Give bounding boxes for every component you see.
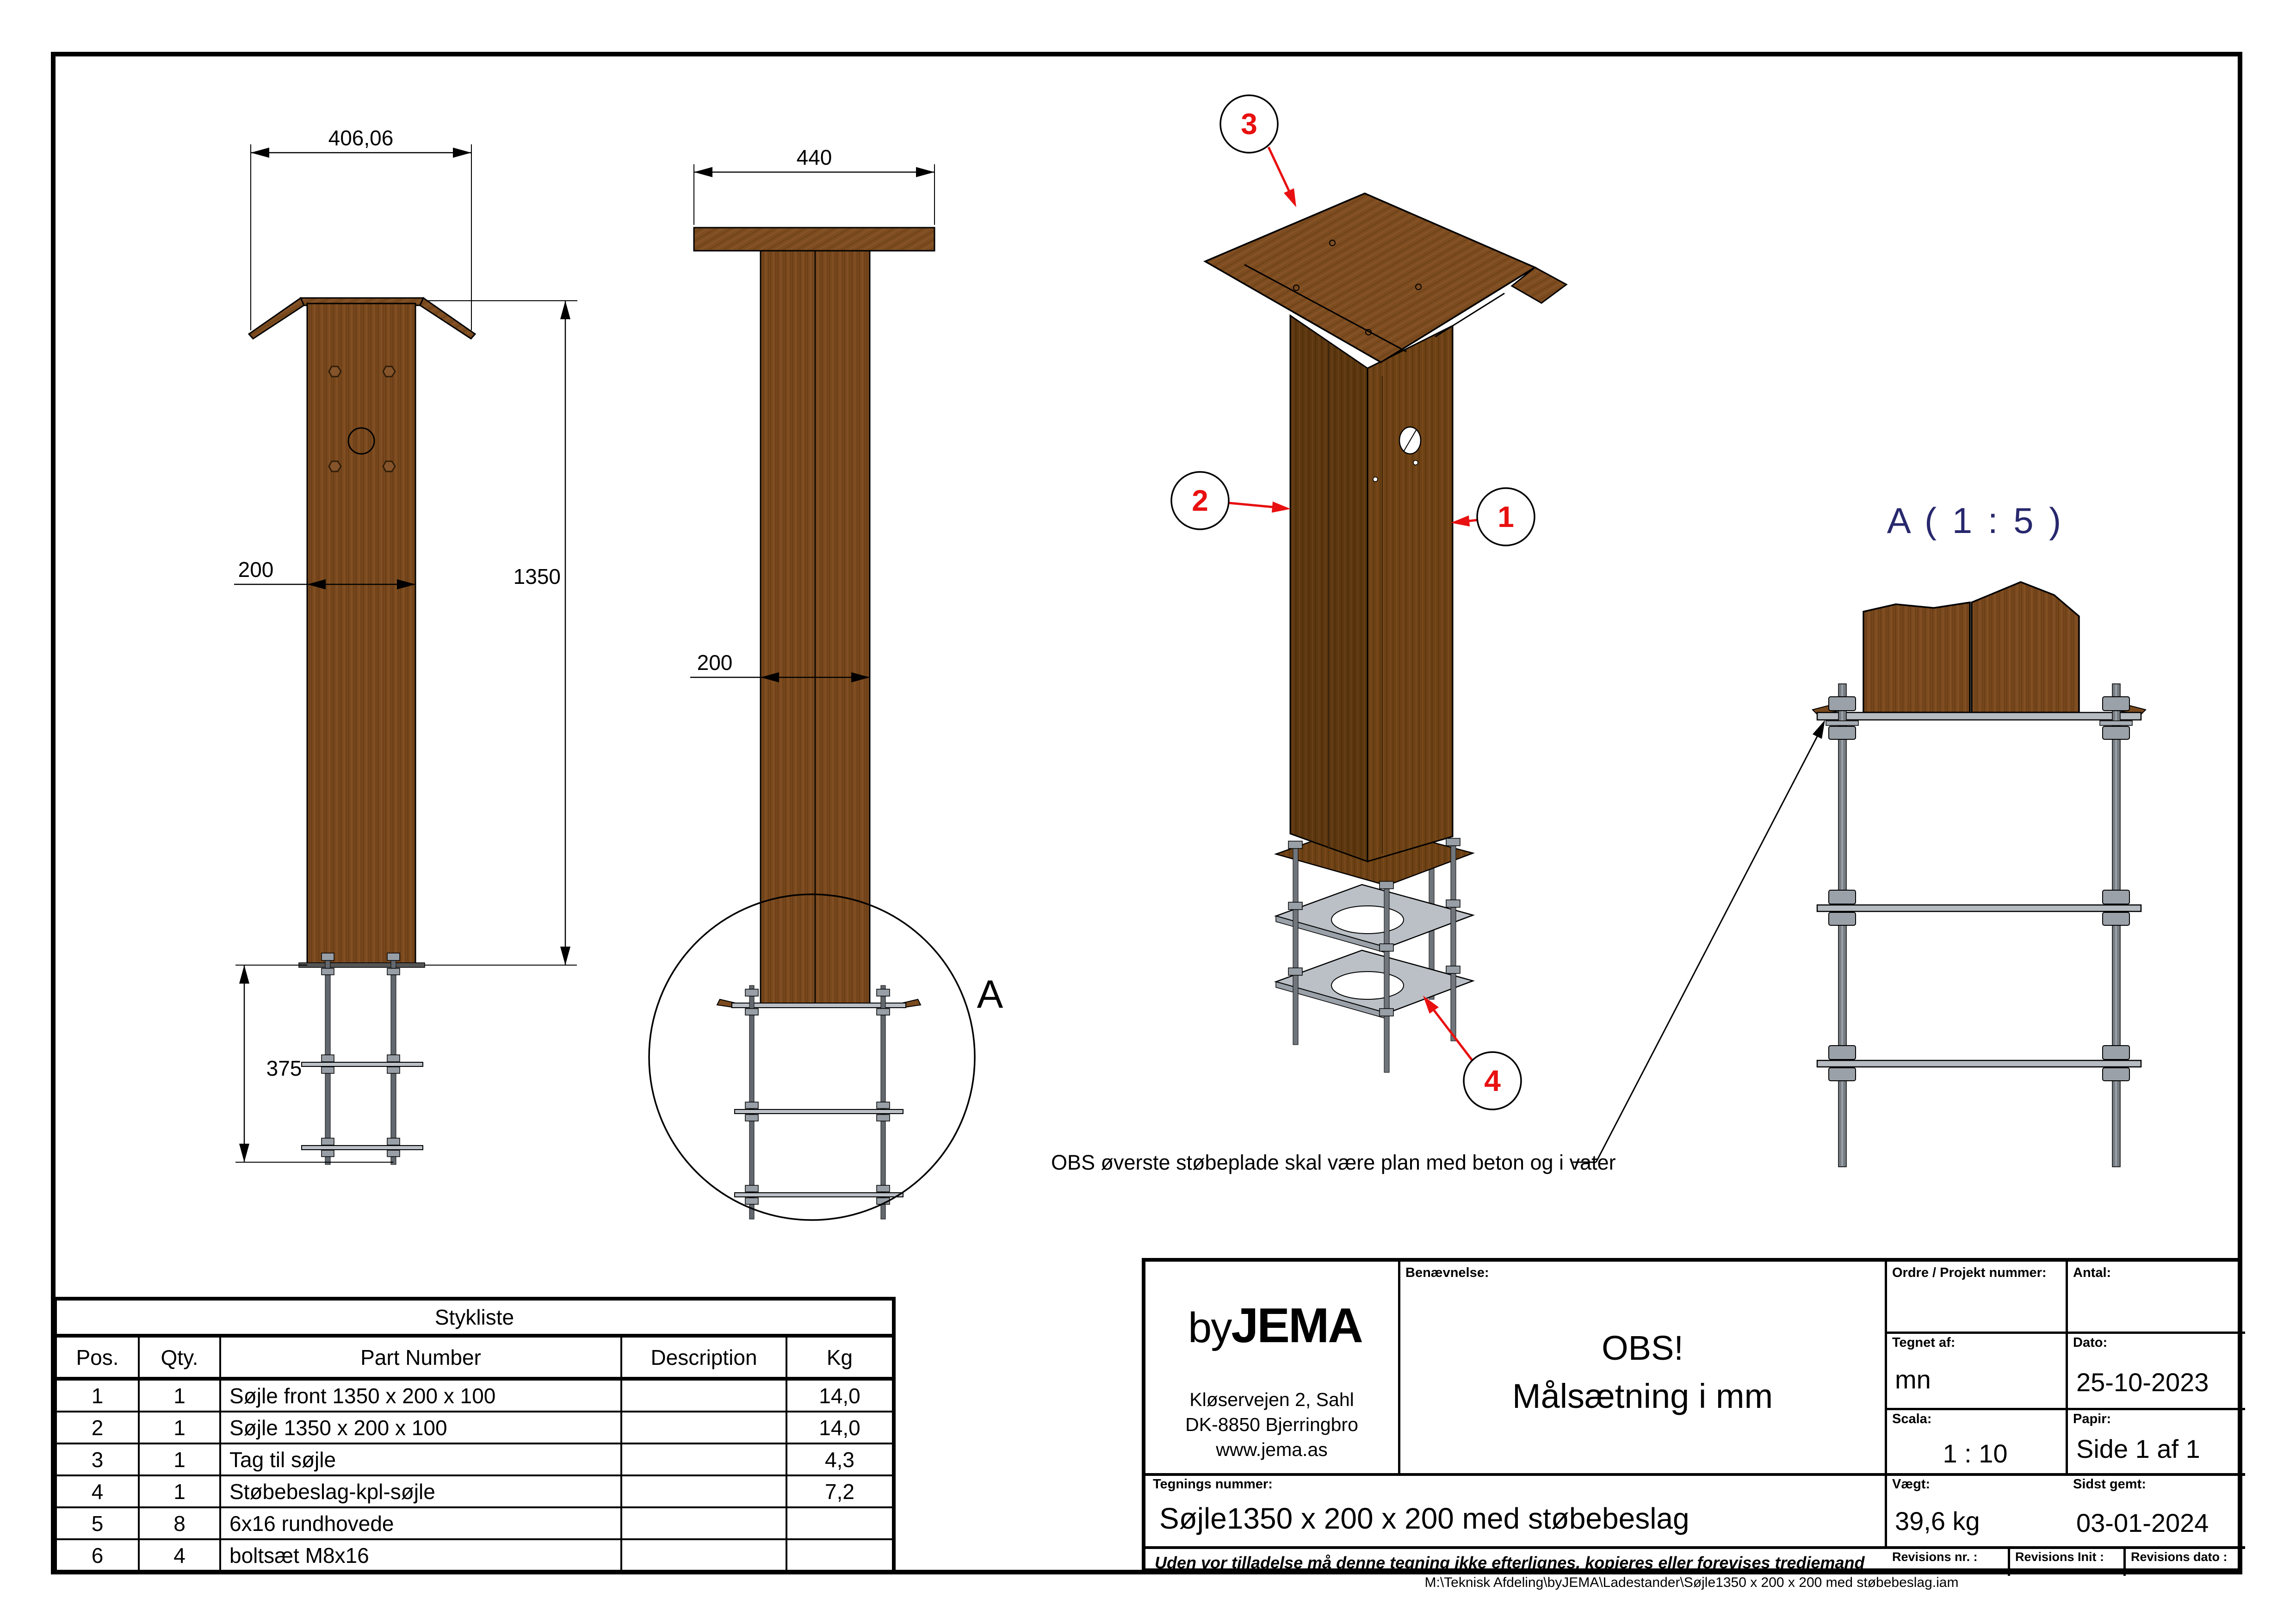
anchor-rod: [1293, 848, 1298, 1045]
side-mid-plate: [735, 1109, 903, 1114]
dim-text: 1350: [514, 564, 561, 588]
cell-desc: [621, 1412, 786, 1443]
dim-text: 440: [797, 145, 832, 169]
nut-icon: [745, 1185, 758, 1192]
nut-icon: [322, 953, 334, 960]
side-bottom-plate: [735, 1193, 903, 1197]
title-block: byJEMA Kløservejen 2, Sahl DK-8850 Bjerr…: [1142, 1258, 2241, 1572]
nut-icon: [387, 1138, 400, 1145]
nut-icon: [2103, 912, 2129, 925]
cell-desc: [621, 1443, 786, 1475]
cell-kg: 4,3: [786, 1443, 894, 1475]
value-scala: 1 : 10: [1885, 1438, 2066, 1468]
cell-part: Tag til søjle: [220, 1443, 621, 1475]
iso-view: 3 2 1 4 OBS øverste støbeplade skal være…: [1051, 95, 1825, 1174]
logo-by: by: [1188, 1304, 1231, 1351]
nut-icon: [745, 1009, 758, 1015]
table-row: 21Søjle 1350 x 200 x 10014,0: [55, 1412, 894, 1443]
cell-part: Støbebeslag-kpl-søjle: [220, 1475, 621, 1507]
col-part: Part Number: [220, 1336, 621, 1379]
dim-text: 200: [238, 558, 274, 582]
nut-icon: [1288, 902, 1302, 910]
nut-icon: [387, 968, 400, 975]
iso-roof: [1205, 193, 1535, 362]
cell-pos: 2: [55, 1412, 139, 1443]
value-tegnet-af: mn: [1895, 1364, 1931, 1394]
table-row: 31Tag til søjle4,3: [55, 1443, 894, 1475]
detail-wood-right: [1972, 582, 2079, 712]
detail-title: A ( 1 : 5 ): [1887, 500, 2064, 541]
detail-wood-left: [1863, 602, 1970, 712]
bolt-icon: [329, 461, 341, 471]
balloon-number: 2: [1192, 484, 1208, 517]
label-papir: Papir:: [2073, 1412, 2111, 1427]
cell-part: Søjle front 1350 x 200 x 100: [220, 1379, 621, 1412]
nut-icon: [1446, 966, 1460, 973]
nut-icon: [2103, 1046, 2129, 1059]
label-antal: Antal:: [2073, 1265, 2111, 1281]
nut-icon: [322, 968, 334, 975]
label-rev-dato: Revisions dato :: [2131, 1550, 2228, 1564]
label-dato: Dato:: [2073, 1335, 2107, 1350]
value-vaegt: 39,6 kg: [1895, 1506, 1980, 1536]
cell-kg: 14,0: [786, 1379, 894, 1412]
nut-icon: [387, 1055, 400, 1062]
detail-mid-plate: [1817, 905, 2141, 911]
nut-icon: [322, 1138, 334, 1145]
detail-bottom-plate: [1817, 1060, 2141, 1067]
balloon-1: 1: [1451, 488, 1535, 545]
balloon-number: 3: [1241, 107, 1257, 141]
cell-part: 6x16 rundhovede: [220, 1507, 621, 1539]
nut-icon: [1829, 912, 1856, 925]
nut-icon: [1288, 968, 1302, 975]
parts-list-title: Stykliste: [55, 1299, 894, 1336]
dim-440: 440: [694, 145, 934, 225]
nut-icon: [1829, 1068, 1856, 1081]
iso-column-right-face: [1368, 326, 1453, 861]
value-papir: Side 1 af 1: [2076, 1434, 2200, 1464]
nut-icon: [1829, 890, 1856, 904]
nut-icon: [877, 989, 890, 996]
col-pos: Pos.: [55, 1336, 139, 1379]
benaevnelse-line2: Målsætning i mm: [1400, 1372, 1885, 1420]
nut-icon: [322, 1150, 334, 1157]
disclaimer: Uden vor tilladelse må denne tegning ikk…: [1155, 1553, 1865, 1573]
dim-1350: 1350: [427, 301, 577, 965]
col-qty: Qty.: [139, 1336, 220, 1379]
balloon-2: 2: [1171, 472, 1291, 529]
label-benaevnelse: Benævnelse:: [1405, 1265, 1489, 1281]
cell-qty: 1: [139, 1412, 220, 1443]
col-desc: Description: [621, 1336, 786, 1379]
nut-icon: [2103, 1068, 2129, 1081]
side-roof-plate: [694, 228, 934, 251]
label-ordre: Ordre / Projekt nummer:: [1892, 1265, 2047, 1281]
dim-text: 406,06: [328, 126, 394, 150]
nut-icon: [1380, 881, 1393, 889]
nut-icon: [745, 1102, 758, 1109]
address-line: www.jema.as: [1145, 1437, 1398, 1462]
side-top-plate: [732, 1003, 906, 1008]
front-column: [307, 304, 415, 965]
nut-icon: [1288, 841, 1302, 849]
cell-pos: 4: [55, 1475, 139, 1507]
benaevnelse-value: OBS! Målsætning i mm: [1400, 1324, 1885, 1420]
table-row: 11Søjle front 1350 x 200 x 10014,0: [55, 1379, 894, 1412]
nut-icon: [745, 989, 758, 996]
balloon-3: 3: [1220, 95, 1296, 207]
obs-note: OBS øverste støbeplade skal være plan me…: [1051, 1151, 1616, 1174]
bolt-icon: [329, 366, 341, 377]
label-rev-nr: Revisions nr. :: [1892, 1550, 1978, 1564]
benaevnelse-line1: OBS!: [1400, 1324, 1885, 1372]
front-mid-plate: [302, 1062, 423, 1066]
cell-qty: 8: [139, 1507, 220, 1539]
label-vaegt: Vægt:: [1892, 1477, 1930, 1492]
logo-jema: JEMA: [1231, 1298, 1362, 1353]
cell-desc: [621, 1507, 786, 1539]
dim-text: 200: [697, 650, 733, 675]
drawing-sheet: { "front_view": { "dim_top_width": "406,…: [0, 0, 2296, 1623]
dim-text: 375: [266, 1056, 302, 1080]
nut-icon: [387, 1067, 400, 1073]
cell-desc: [621, 1539, 786, 1572]
plate-hole: [1331, 906, 1404, 934]
cell-qty: 1: [139, 1379, 220, 1412]
table-row: 586x16 rundhovede: [55, 1507, 894, 1539]
table-row: 64boltsæt M8x16: [55, 1539, 894, 1572]
cell-pos: 3: [55, 1443, 139, 1475]
nut-icon: [877, 1185, 890, 1192]
nut-icon: [877, 1115, 890, 1121]
value-sidst-gemt: 03-01-2024: [2076, 1508, 2209, 1538]
balloon-number: 4: [1484, 1064, 1501, 1097]
anchor-rod: [1451, 845, 1456, 1041]
cell-pos: 1: [55, 1379, 139, 1412]
cell-kg: [786, 1507, 894, 1539]
cell-desc: [621, 1475, 786, 1507]
cell-kg: 7,2: [786, 1475, 894, 1507]
label-tegnet-af: Tegnet af:: [1892, 1335, 1955, 1350]
nut-icon: [387, 953, 400, 960]
cell-kg: [786, 1539, 894, 1572]
balloon-number: 1: [1498, 500, 1514, 533]
nut-icon: [745, 1198, 758, 1204]
parts-list-header: Pos. Qty. Part Number Description Kg: [55, 1336, 894, 1379]
nut-icon: [2103, 890, 2129, 904]
col-kg: Kg: [786, 1336, 894, 1379]
detail-top-plate: [1817, 712, 2141, 720]
label-sidst-gemt: Sidst gemt:: [2073, 1477, 2146, 1492]
nut-icon: [1380, 1009, 1393, 1016]
balloon-4: 4: [1423, 996, 1521, 1109]
cell-kg: 14,0: [786, 1412, 894, 1443]
address-line: DK-8850 Bjerringbro: [1145, 1412, 1398, 1437]
value-tegnings-nummer: Søjle1350 x 200 x 200 med støbebeslag: [1159, 1501, 1690, 1536]
side-view: 440 200 A: [649, 145, 1003, 1220]
cell-pos: 6: [55, 1539, 139, 1572]
screw-icon: [1373, 477, 1378, 482]
washer-icon: [2100, 721, 2132, 725]
nut-icon: [2103, 726, 2129, 739]
detail-view-A: A ( 1 : 5 ): [1813, 500, 2146, 1167]
front-top-plate: [299, 963, 425, 967]
nut-icon: [1829, 726, 1856, 739]
nut-icon: [1829, 697, 1856, 711]
front-view: 406,06 200 1350 375: [234, 126, 577, 1165]
company-logo: byJEMA: [1164, 1298, 1386, 1354]
table-row: 41Støbebeslag-kpl-søjle7,2: [55, 1475, 894, 1507]
nut-icon: [1380, 944, 1393, 951]
bolt-icon: [383, 461, 395, 471]
note-leader: [1596, 735, 1818, 1162]
nut-icon: [877, 1102, 890, 1109]
nut-icon: [2103, 697, 2129, 711]
front-roof-flap-left: [249, 298, 304, 339]
nut-icon: [745, 1115, 758, 1121]
plate-hole: [1331, 972, 1404, 999]
company-address: Kløservejen 2, Sahl DK-8850 Bjerringbro …: [1145, 1387, 1398, 1462]
file-path: M:\Teknisk Afdeling\byJEMA\Ladestander\S…: [1142, 1575, 2241, 1591]
detail-label: A: [977, 973, 1003, 1016]
label-rev-init: Revisions Init :: [2015, 1550, 2104, 1564]
cell-pos: 5: [55, 1507, 139, 1539]
cell-desc: [621, 1379, 786, 1412]
front-roof-flap-right: [420, 298, 475, 339]
cell-qty: 4: [139, 1539, 220, 1572]
address-line: Kløservejen 2, Sahl: [1145, 1387, 1398, 1412]
cell-qty: 1: [139, 1475, 220, 1507]
bolt-icon: [383, 366, 395, 377]
label-tegnings-nummer: Tegnings nummer:: [1153, 1477, 1273, 1492]
label-scala: Scala:: [1892, 1412, 1931, 1427]
nut-icon: [1829, 1046, 1856, 1059]
screw-icon: [1413, 460, 1418, 465]
nut-icon: [322, 1055, 334, 1062]
nut-icon: [1446, 838, 1460, 846]
washer-icon: [1826, 721, 1858, 725]
anchor-rod: [1384, 888, 1389, 1072]
value-dato: 25-10-2023: [2076, 1367, 2209, 1397]
cell-qty: 1: [139, 1443, 220, 1475]
parts-list: Stykliste Pos. Qty. Part Number Descript…: [53, 1297, 896, 1574]
cell-part: Søjle 1350 x 200 x 100: [220, 1412, 621, 1443]
nut-icon: [1446, 900, 1460, 907]
front-bottom-plate: [302, 1146, 423, 1150]
nut-icon: [877, 1009, 890, 1015]
cell-part: boltsæt M8x16: [220, 1539, 621, 1572]
nut-icon: [387, 1150, 400, 1157]
nut-icon: [322, 1067, 334, 1073]
